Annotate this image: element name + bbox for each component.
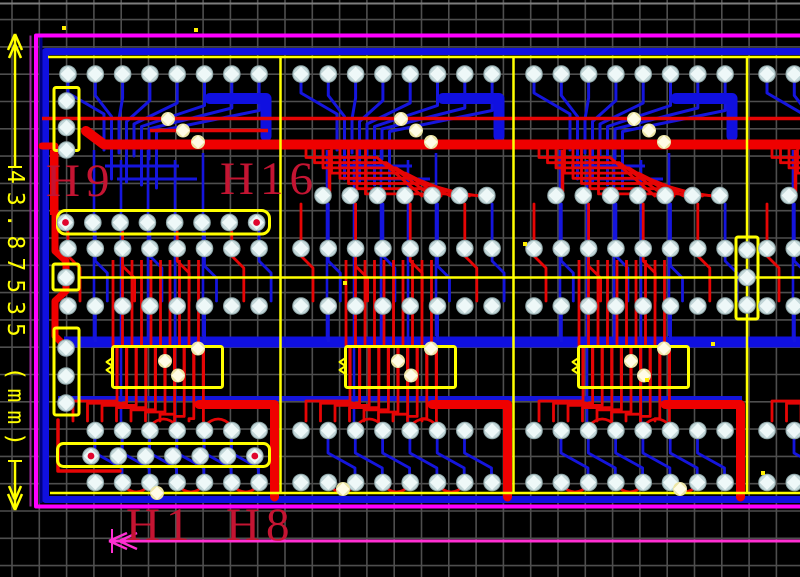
trace (670, 437, 697, 474)
trace (626, 388, 641, 421)
trace (355, 437, 382, 474)
pcb-canvas (0, 0, 800, 577)
trace (787, 388, 800, 421)
label-h9: H9 (46, 158, 115, 205)
dimension-text: 43.87535 (mm) (2, 170, 28, 454)
yellow-dot (711, 342, 715, 346)
yellow-dot (194, 28, 198, 32)
yellow-dot (62, 26, 66, 30)
pad-hole (88, 453, 95, 460)
trace (561, 437, 588, 474)
pad-hole (62, 219, 69, 226)
trace (160, 388, 175, 421)
trace (643, 437, 670, 474)
yellow-dot (761, 471, 765, 475)
trace (328, 437, 355, 474)
trace (422, 388, 427, 421)
trace (437, 437, 464, 474)
label-h16: H16 (220, 156, 319, 203)
trace (465, 437, 492, 474)
pcb-viewport[interactable]: H9 H16 H1 H8 43.87535 (mm) (0, 0, 800, 577)
trace (393, 388, 408, 421)
trace (588, 437, 615, 474)
trace (383, 437, 410, 474)
pad-hole (251, 453, 258, 460)
yellow-dot (645, 378, 649, 382)
label-h1: H1 (126, 502, 195, 549)
trace (655, 388, 660, 421)
trace (616, 437, 643, 474)
label-h8: H8 (226, 502, 295, 549)
trace (698, 437, 725, 474)
trace (794, 437, 800, 474)
yellow-dot (523, 242, 527, 246)
trace (189, 388, 194, 421)
trace (410, 437, 437, 474)
pad-hole (253, 219, 260, 226)
yellow-dot (343, 281, 347, 285)
